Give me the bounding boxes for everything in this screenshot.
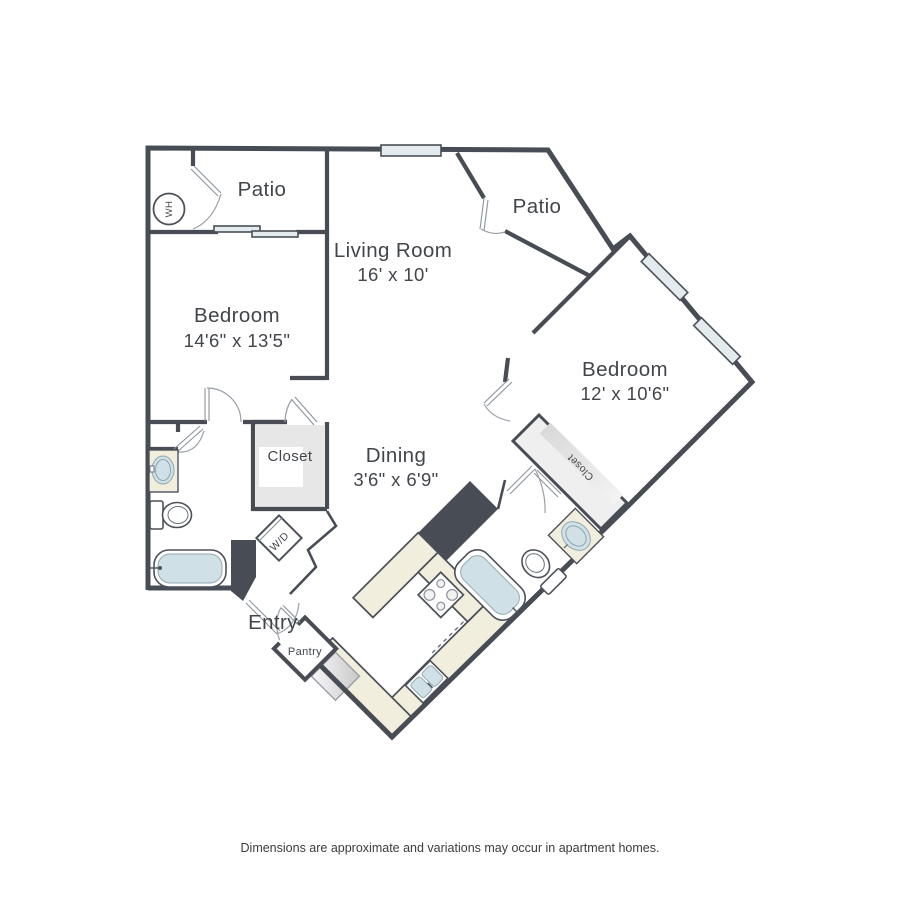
living-room-dims: 16' x 10' [357, 264, 428, 285]
background [0, 0, 900, 900]
patio-right-label: Patio [513, 195, 562, 218]
pantry-label: Pantry [288, 646, 322, 658]
wh-label: WH [164, 201, 175, 218]
bedroom2-corner-stub [505, 358, 508, 382]
bedroom-right-label: Bedroom [582, 358, 668, 381]
entry-label: Entry [248, 611, 298, 634]
floor-plan: Patio Patio Living Room 16' x 10' Bedroo… [0, 0, 900, 900]
patio-left-label: Patio [238, 178, 287, 201]
bedroom-left-label: Bedroom [194, 304, 280, 327]
closet-left [251, 422, 327, 511]
dining-dims: 3'6" x 6'9" [353, 469, 438, 490]
living-room-label: Living Room [334, 239, 452, 262]
footer-disclaimer: Dimensions are approximate and variation… [241, 841, 660, 855]
dining-label: Dining [366, 444, 427, 467]
closet-left-label: Closet [268, 448, 313, 465]
bathroom1-vanity [149, 450, 178, 492]
living-window [381, 145, 441, 156]
bedroom-right-dims: 12' x 10'6" [580, 383, 669, 404]
bathtub-icon [148, 550, 226, 587]
toilet-icon [150, 501, 192, 529]
floorplan-page: Patio Patio Living Room 16' x 10' Bedroo… [0, 0, 900, 900]
bedroom-left-dims: 14'6" x 13'5" [184, 330, 291, 351]
